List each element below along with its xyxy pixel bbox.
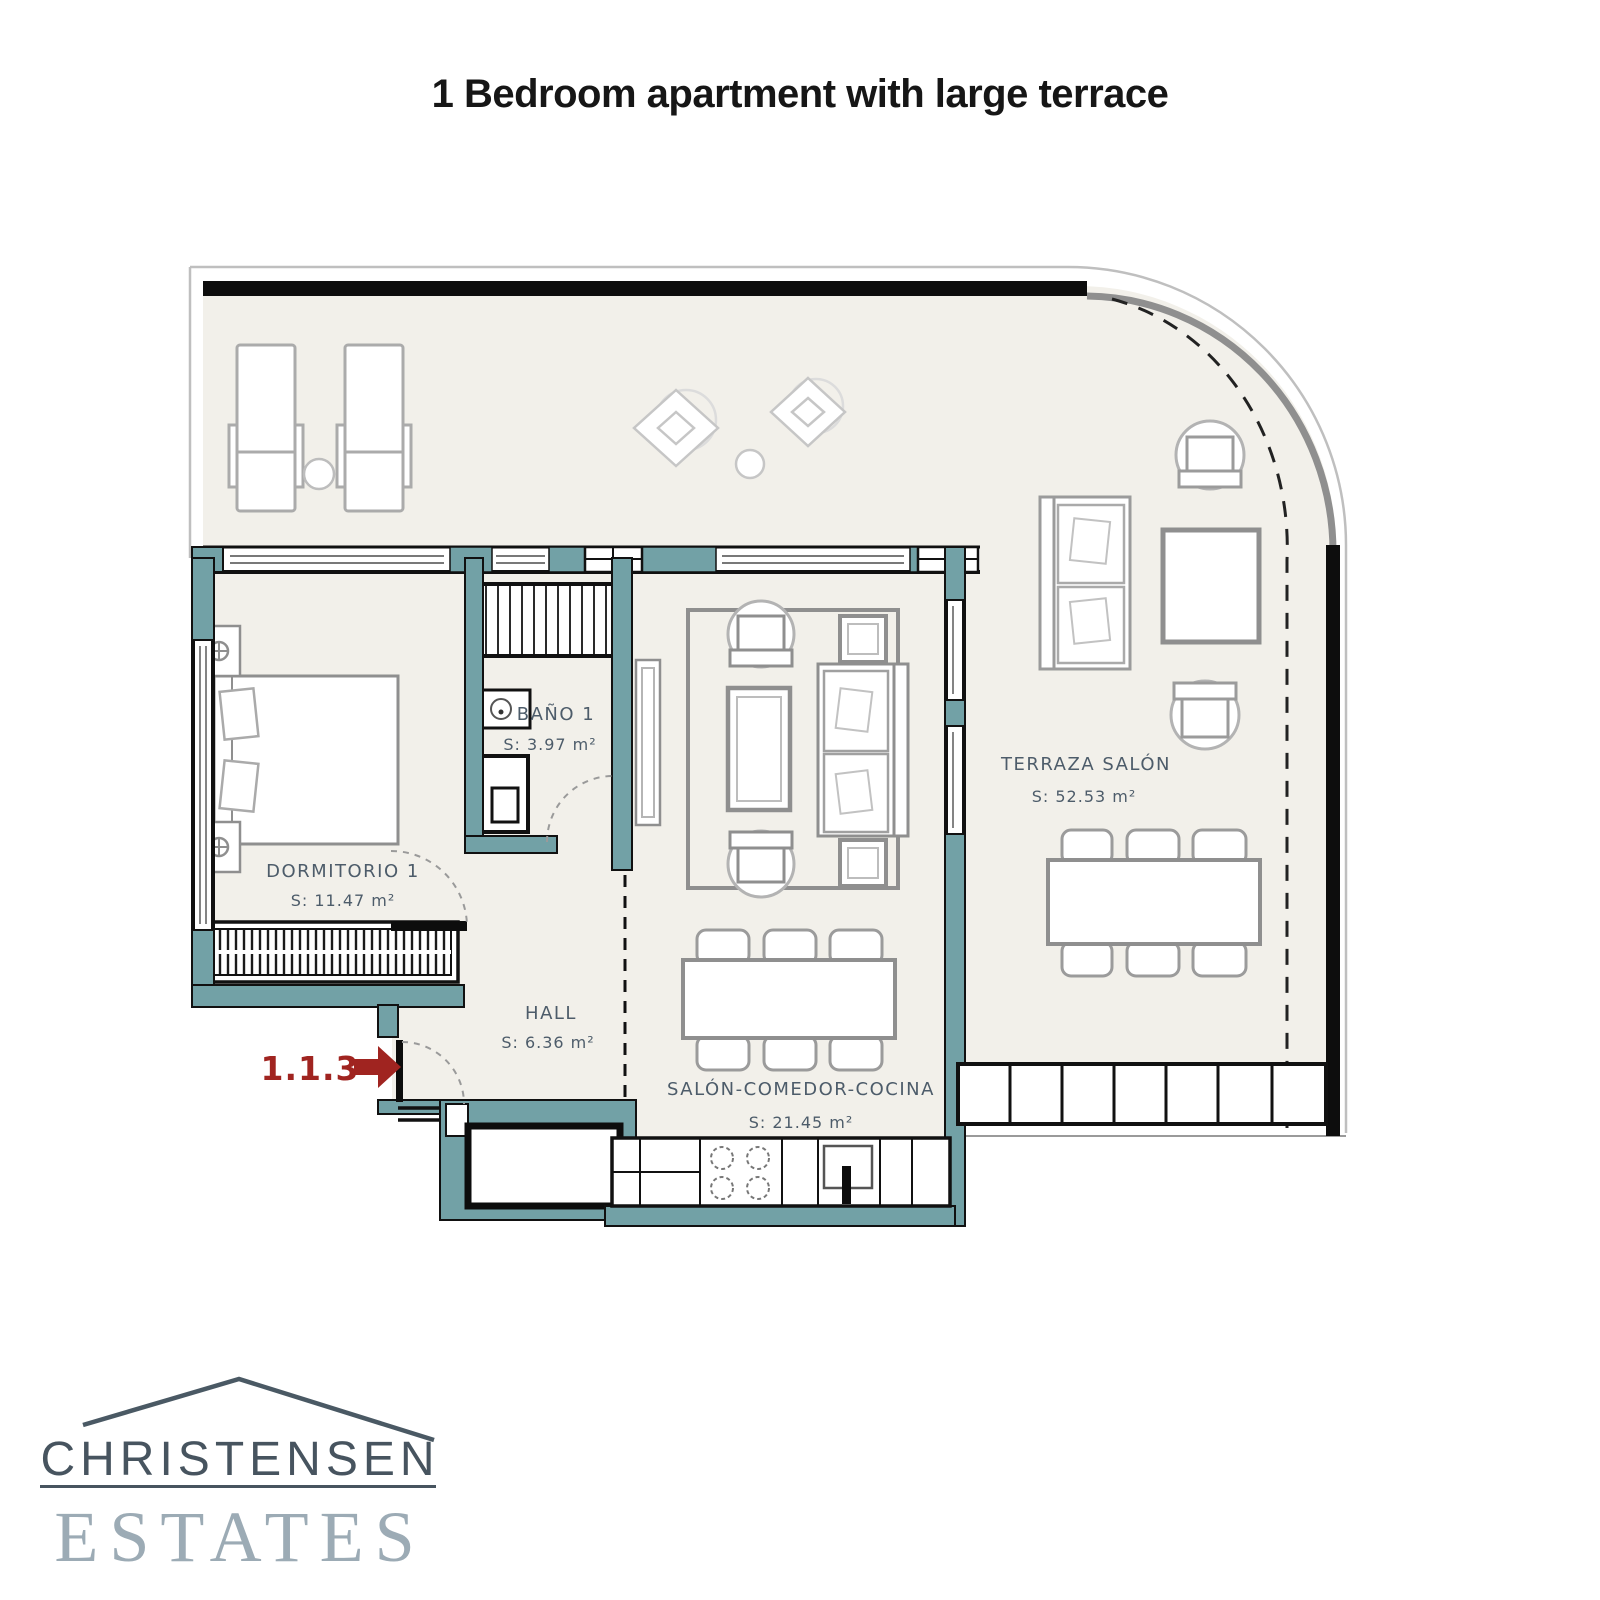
room-area-hall: S: 6.36 m² <box>501 1033 594 1052</box>
side-table <box>840 840 886 886</box>
terrace-dining-set <box>1048 830 1260 976</box>
room-area-bano: S: 3.97 m² <box>503 735 596 754</box>
bed <box>214 676 398 844</box>
wall-pier <box>549 547 585 572</box>
kitchen-counter <box>605 1138 955 1226</box>
toilet <box>482 756 528 832</box>
armchair <box>728 831 794 897</box>
wall-top <box>203 281 1087 296</box>
room-label-dormitorio: DORMITORIO 1 <box>266 861 420 882</box>
unit-number: 1.1.3 <box>261 1049 360 1088</box>
terrace-armchair <box>1176 421 1244 489</box>
dining-set <box>683 930 895 1070</box>
dining-table <box>683 960 895 1038</box>
tv-unit <box>636 660 660 825</box>
unit-marker: 1.1.3 <box>261 1046 401 1088</box>
terrace-coffee-table <box>1163 530 1259 642</box>
bedroom-door-leaf <box>391 921 467 931</box>
floor-plan: DORMITORIO 1 S: 11.47 m² BAÑO 1 S: 3.97 … <box>0 0 1600 1600</box>
side-table <box>840 616 886 662</box>
entrance-door-leaf <box>396 1040 403 1102</box>
window <box>194 640 212 930</box>
room-label-salon: SALÓN-COMEDOR-COCINA <box>667 1078 935 1100</box>
brand-logo: CHRISTENSEN ESTATES <box>40 1372 440 1600</box>
shower <box>482 584 618 656</box>
terrace-armchair <box>1171 681 1239 749</box>
terrace-railing <box>958 1064 1326 1124</box>
wall-bath-left <box>465 558 483 853</box>
logo-rule <box>40 1485 436 1488</box>
sun-lounger <box>229 345 303 511</box>
window <box>947 726 963 834</box>
sun-lounger <box>337 345 411 511</box>
sofa <box>818 664 908 836</box>
side-table-round <box>304 459 334 489</box>
terrace-sofa <box>1040 497 1130 669</box>
armchair <box>728 601 794 667</box>
window-band <box>203 547 980 572</box>
wall-right <box>1326 545 1340 1136</box>
room-label-terraza: TERRAZA SALÓN <box>1000 753 1171 775</box>
room-area-dormitorio: S: 11.47 m² <box>291 891 396 910</box>
window <box>947 600 963 700</box>
side-table-round <box>736 450 764 478</box>
room-area-salon: S: 21.45 m² <box>749 1113 854 1132</box>
wall-bedroom-bottom <box>192 985 464 1007</box>
room-label-hall: HALL <box>525 1003 577 1024</box>
wall-bath-bottom <box>465 836 557 853</box>
pillow <box>220 760 259 811</box>
room-label-bano: BAÑO 1 <box>517 703 595 725</box>
wall-bath-salon <box>612 558 632 870</box>
terrace-dining-table <box>1048 860 1260 944</box>
logo-name: CHRISTENSEN <box>40 1432 440 1487</box>
wall-pier <box>642 547 716 572</box>
coffee-table <box>728 688 790 810</box>
page: 1 Bedroom apartment with large terrace <box>0 0 1600 1600</box>
pillow <box>220 688 259 739</box>
utility-closet <box>440 1100 636 1220</box>
room-area-terraza: S: 52.53 m² <box>1032 787 1137 806</box>
logo-type: ESTATES <box>40 1496 440 1579</box>
